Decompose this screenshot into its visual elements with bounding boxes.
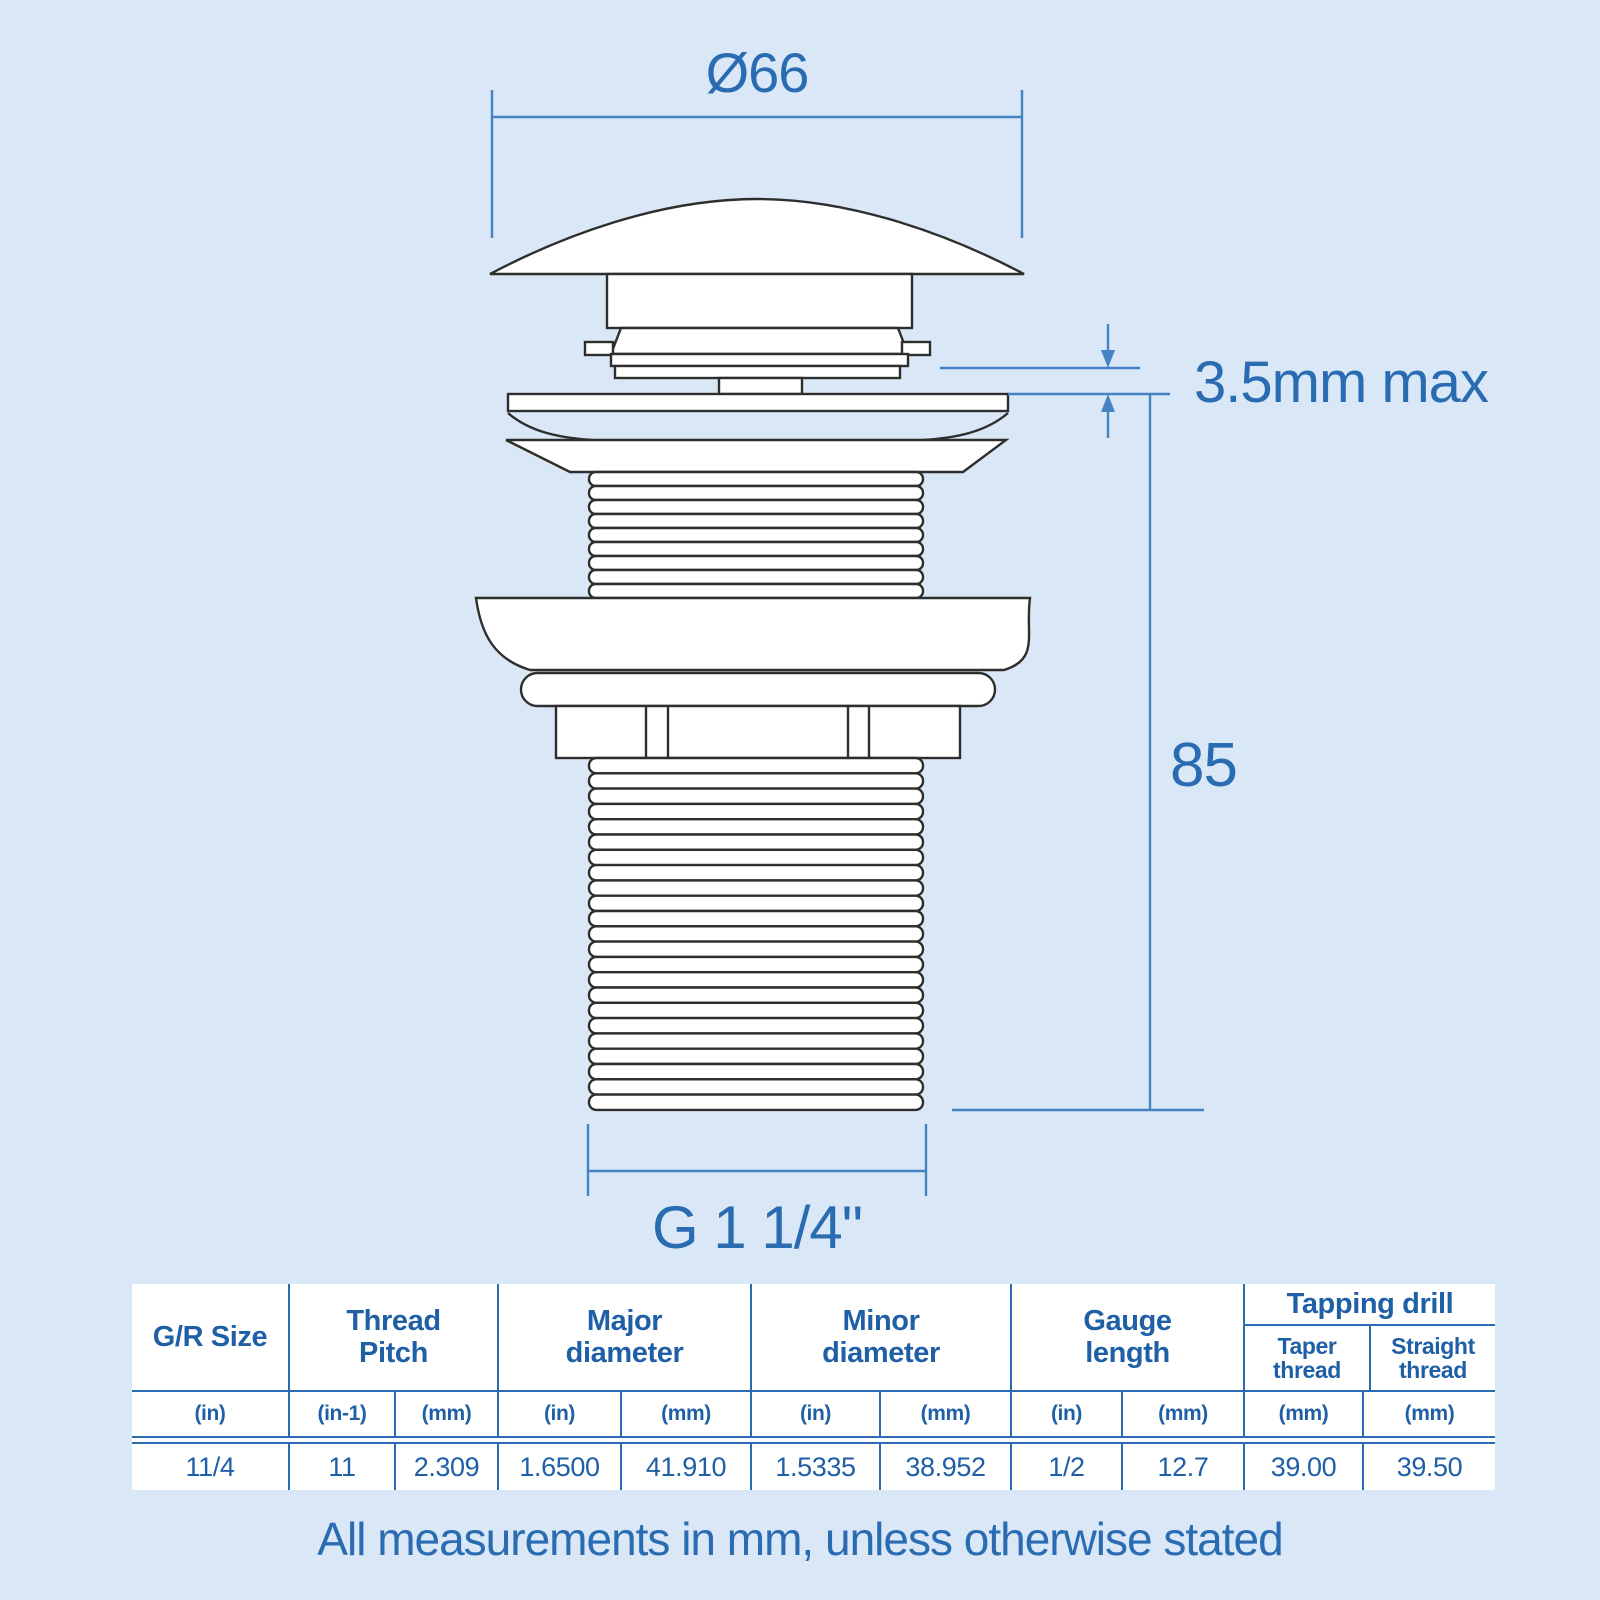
value-cell: 1/2 [1010,1444,1121,1490]
tapping-drill-subheaders: Taper thread Straight thread [1245,1326,1495,1390]
diagram-canvas: Ø66 [0,0,1600,1600]
backnut [556,706,960,758]
value-cell: 11/4 [132,1444,288,1490]
thread-ridge [589,472,923,486]
thread-ridge [589,819,923,834]
thread-ridge [589,486,923,500]
top-flange [506,394,1008,472]
upper-threads [589,472,923,598]
col-header-minor-diameter: Minor diameter [750,1284,1010,1392]
value-cell: 39.00 [1243,1444,1362,1490]
measurement-note: All measurements in mm, unless otherwise… [0,1512,1600,1566]
tapered-gasket [506,440,1006,472]
subheader-straight-thread: Straight thread [1369,1326,1495,1390]
unit-cell: (in) [497,1392,620,1436]
cap-assembly [490,199,1024,394]
thread-ridge [589,556,923,570]
thread-ridge [589,972,923,987]
unit-cell: (mm) [1121,1392,1243,1436]
flange-plate [508,394,1008,411]
flange-skirt-left [508,413,593,440]
thread-ridge [589,1049,923,1064]
table-double-rule [132,1436,1495,1444]
subheader-taper-thread: Taper thread [1245,1326,1369,1390]
thread-ridge [589,911,923,926]
thread-ridge [589,865,923,880]
unit-cell: (mm) [879,1392,1010,1436]
thread-ridge [589,835,923,850]
thread-ridge [589,880,923,895]
lower-threads [589,758,923,1110]
value-cell: 39.50 [1362,1444,1495,1490]
body-flange [476,598,1030,758]
cap-taper [611,328,908,354]
thread-ridge [589,1079,923,1094]
value-cell: 12.7 [1121,1444,1243,1490]
thread-ridge [589,1018,923,1033]
top-diameter-label: Ø66 [706,41,809,104]
col-header-tapping-drill: Tapping drill Taper thread Straight thre… [1243,1284,1495,1392]
thread-ridge [589,1064,923,1079]
seal-ring [521,673,995,706]
body-length-label: 85 [1170,731,1237,800]
col-header-thread-pitch: Thread Pitch [288,1284,497,1392]
arrow-down-icon [1101,350,1115,368]
value-cell: 38.952 [879,1444,1010,1490]
thread-ridge [589,896,923,911]
spec-table: G/R Size Thread Pitch Major diameter Min… [132,1284,1495,1490]
col-header-gauge-length: Gauge length [1010,1284,1243,1392]
flange-bowl [476,598,1030,670]
subheader-label: Taper thread [1273,1334,1341,1382]
col-header-label: Minor diameter [822,1305,940,1370]
thread-ridge [589,957,923,972]
dimension-body-length: 85 [952,394,1237,1110]
unit-cell: (mm) [394,1392,497,1436]
thread-ridge [589,514,923,528]
thread-ridge [589,570,923,584]
col-header-label: Gauge length [1083,1305,1171,1370]
thread-ridge [589,850,923,865]
thread-size-label: G 1 1/4" [652,1194,862,1261]
thread-ridge [589,542,923,556]
cap-stem [719,378,802,394]
col-header-gr-size: G/R Size [132,1284,288,1392]
unit-cell: (in) [132,1392,288,1436]
col-header-major-diameter: Major diameter [497,1284,750,1392]
unit-cell: (mm) [620,1392,750,1436]
value-cell: 11 [288,1444,394,1490]
cap-gap-label: 3.5mm max [1194,350,1489,415]
tapping-drill-title: Tapping drill [1245,1284,1495,1326]
thread-ridge [589,1095,923,1110]
value-cell: 2.309 [394,1444,497,1490]
subheader-label: Straight thread [1391,1334,1475,1382]
thread-ridge [589,773,923,788]
cap-ring [611,354,908,366]
arrow-up-icon [1101,394,1115,412]
unit-cell: (in) [1010,1392,1121,1436]
dimension-cap-gap: 3.5mm max [940,324,1489,438]
cap-dome [490,199,1024,274]
thread-ridge [589,926,923,941]
thread-ridge [589,584,923,598]
cap-body [607,274,912,328]
thread-ridge [589,500,923,514]
thread-ridge [589,758,923,773]
col-header-label: Thread Pitch [346,1305,440,1370]
unit-cell: (in) [750,1392,879,1436]
value-cell: 1.5335 [750,1444,879,1490]
value-cell: 41.910 [620,1444,750,1490]
thread-ridge [589,1003,923,1018]
thread-ridge [589,1033,923,1048]
col-header-label: Major diameter [566,1305,684,1370]
thread-ridge [589,942,923,957]
cap-tab-left [585,342,613,355]
thread-ridge [589,988,923,1003]
cap-plate [615,366,900,378]
unit-cell: (mm) [1243,1392,1362,1436]
thread-ridge [589,789,923,804]
thread-ridge [589,528,923,542]
dimension-thread-size: G 1 1/4" [588,1124,926,1261]
flange-skirt-right [923,413,1008,440]
unit-cell: (in-1) [288,1392,394,1436]
thread-ridge [589,804,923,819]
value-cell: 1.6500 [497,1444,620,1490]
unit-cell: (mm) [1362,1392,1495,1436]
